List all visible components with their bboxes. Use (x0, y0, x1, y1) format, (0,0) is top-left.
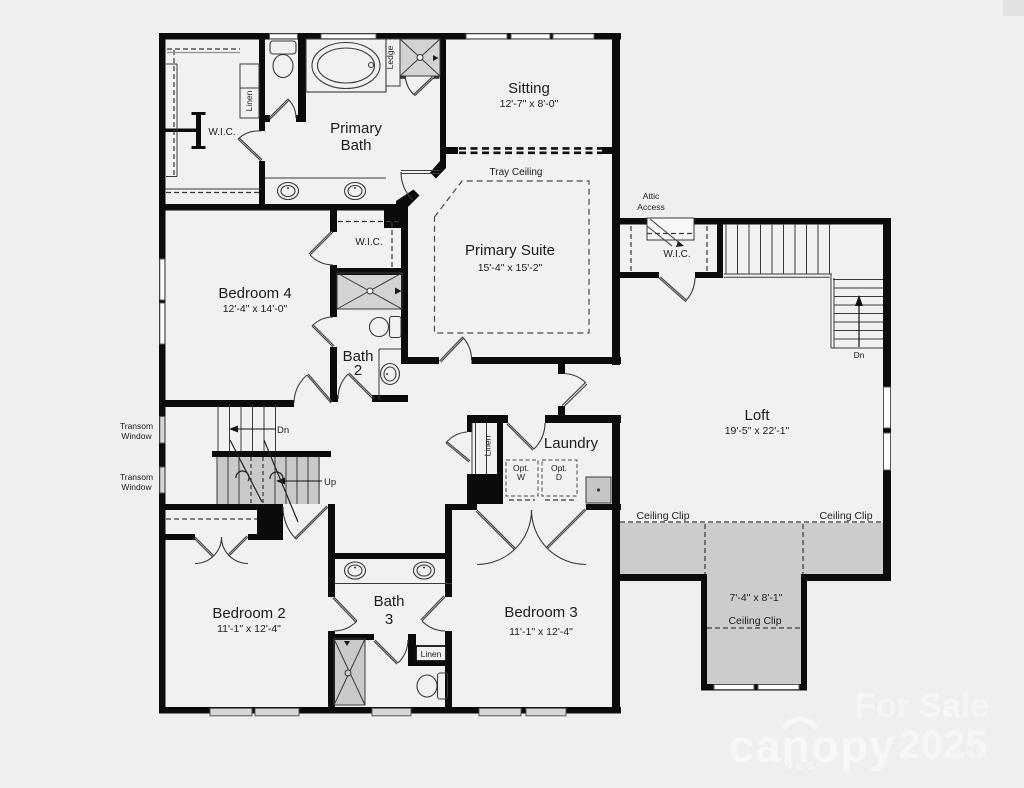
svg-text:Dn: Dn (277, 425, 289, 436)
svg-text:Bath: Bath (341, 137, 372, 154)
svg-text:Dn: Dn (854, 350, 865, 360)
svg-text:12'-4" x 14'-0": 12'-4" x 14'-0" (223, 303, 288, 315)
svg-text:12'-7" x 8'-0": 12'-7" x 8'-0" (500, 98, 559, 110)
svg-text:Transom: Transom (120, 472, 153, 482)
svg-text:2: 2 (354, 362, 362, 379)
svg-text:Bedroom 4: Bedroom 4 (218, 285, 291, 302)
svg-text:Tray Ceiling: Tray Ceiling (490, 167, 543, 178)
svg-text:Ledge: Ledge (385, 45, 395, 69)
svg-text:7'-4" x 8'-1": 7'-4" x 8'-1" (730, 592, 783, 604)
svg-text:11'-1" x 12'-4": 11'-1" x 12'-4" (509, 626, 573, 638)
svg-text:D: D (556, 472, 562, 482)
svg-text:W.I.C.: W.I.C. (208, 127, 235, 138)
svg-text:Transom: Transom (120, 421, 153, 431)
svg-text:Ceiling Clip: Ceiling Clip (728, 615, 781, 627)
svg-text:Up: Up (324, 477, 336, 488)
svg-text:W.I.C.: W.I.C. (663, 249, 690, 260)
svg-text:Attic: Attic (643, 191, 660, 201)
svg-text:Ceiling Clip: Ceiling Clip (819, 510, 872, 522)
svg-text:W: W (517, 472, 525, 482)
svg-text:Linen: Linen (421, 649, 442, 659)
svg-text:Loft: Loft (744, 407, 770, 424)
svg-text:3: 3 (385, 611, 393, 628)
svg-text:Linen: Linen (483, 435, 493, 456)
svg-text:W.I.C.: W.I.C. (355, 237, 382, 248)
svg-text:Ceiling Clip: Ceiling Clip (636, 510, 689, 522)
svg-text:19'-5" x 22'-1": 19'-5" x 22'-1" (725, 425, 790, 437)
svg-text:Linen: Linen (244, 90, 254, 111)
svg-text:Bedroom 3: Bedroom 3 (504, 604, 577, 621)
svg-text:11'-1" x 12'-4": 11'-1" x 12'-4" (217, 623, 281, 635)
svg-text:15'-4" x 15'-2": 15'-4" x 15'-2" (478, 262, 543, 274)
svg-text:Laundry: Laundry (544, 435, 599, 452)
svg-text:Primary Suite: Primary Suite (465, 242, 555, 259)
svg-text:Window: Window (121, 482, 152, 492)
svg-text:Bath: Bath (374, 593, 405, 610)
svg-text:Primary: Primary (330, 120, 382, 137)
svg-text:MLS: MLS (784, 761, 817, 772)
svg-text:Bedroom 2: Bedroom 2 (212, 605, 285, 622)
svg-text:Sitting: Sitting (508, 80, 550, 97)
svg-text:Access: Access (637, 202, 664, 212)
svg-text:2025: 2025 (899, 723, 988, 767)
svg-text:Window: Window (121, 431, 152, 441)
